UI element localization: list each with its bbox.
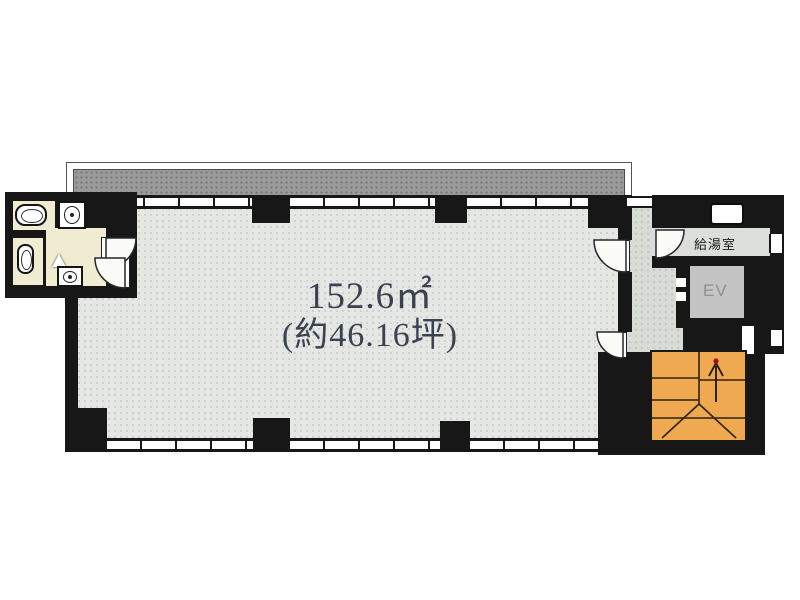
toilet-2 (17, 244, 34, 274)
restroom-door-leaf-lower (119, 257, 130, 288)
window-bottom-1 (107, 439, 253, 451)
window-top-hall (627, 196, 652, 208)
elevator-label: EV (703, 281, 728, 301)
pillar-bottom-2 (440, 421, 470, 452)
area-tsubo: (約46.16坪) (225, 317, 515, 355)
main-room-door-leaf-lower (616, 332, 627, 358)
toilet-3 (57, 266, 83, 287)
window-top-3 (467, 196, 588, 208)
toilet-1 (58, 201, 86, 229)
window-bottom-3 (470, 439, 598, 451)
pillar-top-1 (252, 195, 290, 223)
stair-treads (652, 352, 745, 440)
vanity-sink (15, 204, 47, 226)
kitchenette-right-window (769, 234, 784, 253)
pillar-bottom-1 (253, 418, 290, 452)
window-top-2 (290, 196, 435, 208)
area-square-meters: 152.6㎡ (225, 276, 515, 317)
wall-stairs-right (745, 352, 765, 444)
staircase (650, 350, 747, 442)
floor-plan: 給湯室 EV (0, 0, 800, 600)
toilet-1-bowl (64, 206, 80, 224)
kitchenette-sink (710, 203, 744, 225)
restroom-door-leaf-upper (101, 237, 111, 268)
restroom-block (5, 192, 137, 298)
vanity-basin (21, 209, 43, 224)
toilet-2-bowl (21, 250, 32, 270)
main-room-door-leaf-upper (620, 240, 630, 272)
area-label: 152.6㎡ (約46.16坪) (225, 276, 515, 356)
elevator-door-tick-2 (676, 292, 686, 301)
right-wall-window (769, 330, 784, 346)
window-bottom-2 (290, 439, 440, 451)
toilet-3-bowl (63, 271, 78, 284)
kitchenette-label: 給湯室 (694, 234, 736, 253)
pillar-top-2 (435, 195, 467, 223)
wall-stairs-left-block (598, 352, 652, 442)
elevator-door-tick-1 (676, 278, 686, 287)
balcony (73, 169, 625, 197)
wall-main-right-seg2 (618, 272, 632, 332)
